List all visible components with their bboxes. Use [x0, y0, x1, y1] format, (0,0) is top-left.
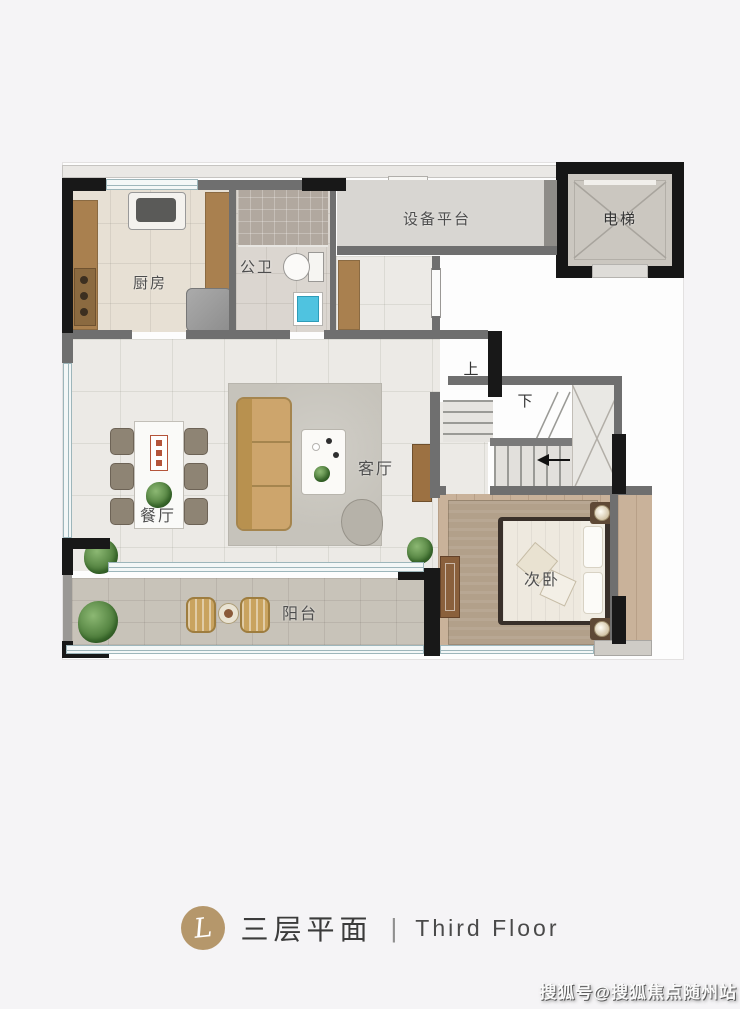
wall-black-segment [62, 178, 73, 333]
stair-direction-arrow-icon [548, 459, 570, 461]
balcony-chair [186, 597, 216, 633]
room-label-bathroom: 公卫 [225, 256, 289, 277]
balcony-window [66, 645, 424, 654]
coffee-table-decor-icon [333, 452, 339, 458]
tray-dish-icon [156, 450, 162, 456]
living-window [63, 363, 72, 538]
toilet-tank [308, 252, 324, 282]
wall-segment [68, 330, 132, 339]
coffee-table-decor-icon [312, 443, 320, 451]
dining-chair [184, 428, 208, 455]
room-label-balcony: 阳台 [268, 600, 332, 624]
wall-segment [438, 486, 446, 495]
sofa-cushion-line [252, 441, 290, 443]
stairs-down-label: 下 [512, 390, 540, 411]
console-table [412, 444, 432, 502]
kitchen-window [106, 179, 198, 190]
stairs-up-label: 上 [458, 358, 486, 379]
fridge [186, 288, 232, 332]
brand-logo: L [181, 906, 225, 950]
room-label-bedroom: 次卧 [510, 566, 574, 590]
sofa-cushion-line [252, 485, 290, 487]
dining-chair [110, 428, 134, 455]
room-label-kitchen: 厨房 [110, 272, 190, 293]
upper-ledge [62, 165, 559, 178]
wall-segment [490, 486, 652, 495]
wall-segment [430, 392, 440, 498]
accent-chair [341, 499, 383, 546]
kitchen-sink-basin-icon [136, 198, 176, 222]
tray-dish-icon [156, 440, 162, 446]
room-label-elevator: 电梯 [568, 208, 672, 229]
wall-segment [186, 330, 290, 339]
stove-burner-icon [80, 276, 88, 284]
stove-burner-icon [80, 308, 88, 316]
wall-black-segment [62, 549, 73, 575]
bedroom-window [440, 645, 594, 654]
dining-chair [110, 463, 134, 490]
footer-separator: | [391, 913, 398, 944]
footer: L 三层平面 | Third Floor [0, 900, 740, 956]
elevator-light-bar [584, 180, 656, 185]
room-label-living: 客厅 [344, 455, 408, 479]
wall-black-segment [612, 434, 626, 494]
coffee-table-decor-icon [326, 438, 332, 444]
balcony-left-wall [63, 575, 72, 641]
balcony-chair [240, 597, 270, 633]
wall-segment [198, 180, 302, 190]
dining-chair [184, 463, 208, 490]
dresser-inlay [445, 563, 455, 611]
wall-segment [330, 183, 336, 332]
wall-black-segment [62, 538, 110, 549]
room-label-dining: 餐厅 [126, 502, 190, 526]
wall-segment [62, 333, 73, 363]
wall-segment [432, 316, 440, 332]
stove-burner-icon [80, 292, 88, 300]
brand-logo-letter: L [192, 914, 213, 943]
wall-segment [337, 246, 557, 255]
hall-cabinet [338, 260, 360, 330]
stair-direction-arrowhead-icon [537, 454, 549, 466]
elevator-door [592, 264, 648, 278]
nightstand-lamp-icon [594, 621, 610, 637]
balcony-table-decor-icon [224, 609, 233, 618]
wall-black-segment [488, 331, 502, 397]
footer-title-cn: 三层平面 [241, 908, 373, 948]
stair-stringer [490, 438, 572, 446]
hall-door-leaf [431, 268, 441, 318]
shower-area [238, 185, 328, 247]
coffee-table [301, 429, 346, 495]
wall-black-segment [424, 568, 440, 656]
footer-title-en: Third Floor [415, 915, 559, 942]
floor-plan-page: 厨房 公卫 设备平台 电梯 客厅 餐厅 次卧 阳台 上 下 L 三层平面 | T… [0, 0, 740, 1009]
nightstand-lamp-icon [594, 505, 610, 521]
sofa-backrest [238, 399, 252, 529]
room-label-equipment-platform: 设备平台 [327, 208, 547, 229]
tray-dish-icon [156, 460, 162, 466]
bed-pillow [583, 526, 603, 568]
wash-basin-water-icon [297, 296, 319, 322]
wall-segment [324, 330, 488, 339]
stairs-up-treads [443, 400, 493, 442]
balcony-door-window [108, 562, 424, 572]
wall-black-segment [612, 596, 626, 644]
wall-segment [432, 256, 440, 270]
watermark: 搜狐号@搜狐焦点随州站 [539, 978, 737, 1003]
wall-black-segment [302, 178, 346, 191]
bed-pillow [583, 572, 603, 614]
